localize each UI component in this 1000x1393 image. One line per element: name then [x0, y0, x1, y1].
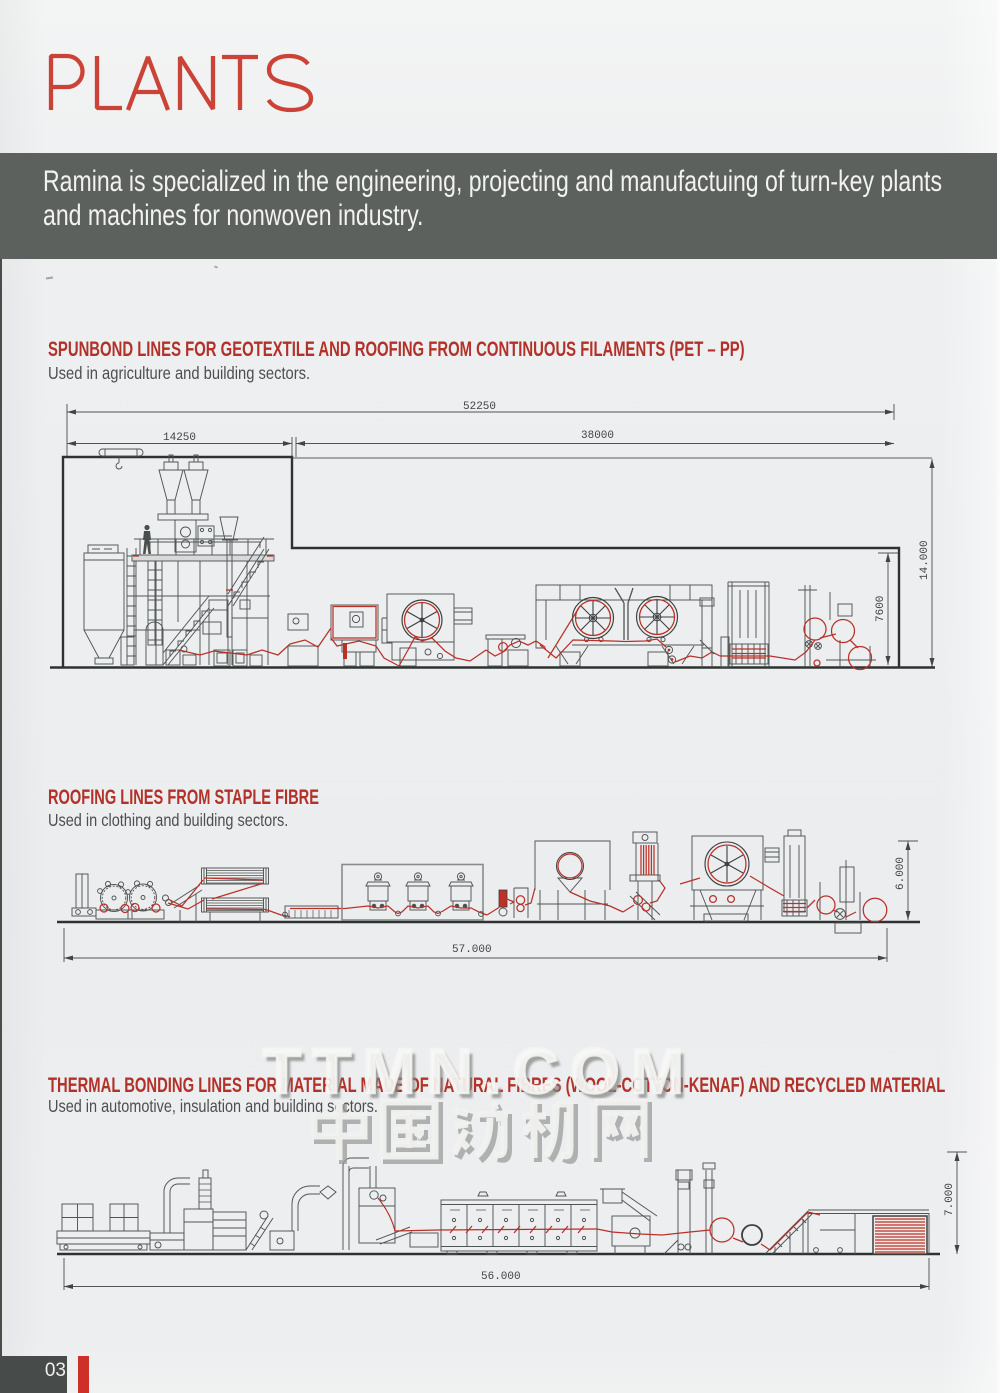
svg-text:57.000: 57.000	[452, 944, 492, 956]
svg-text:7.000: 7.000	[944, 1183, 956, 1216]
svg-text:38000: 38000	[581, 430, 614, 442]
svg-text:6.000: 6.000	[895, 857, 907, 890]
svg-text:7600: 7600	[875, 596, 887, 622]
svg-text:14.000: 14.000	[919, 540, 931, 580]
svg-text:14250: 14250	[163, 432, 196, 444]
svg-text:56.000: 56.000	[481, 1271, 521, 1283]
svg-text:52250: 52250	[463, 401, 496, 413]
